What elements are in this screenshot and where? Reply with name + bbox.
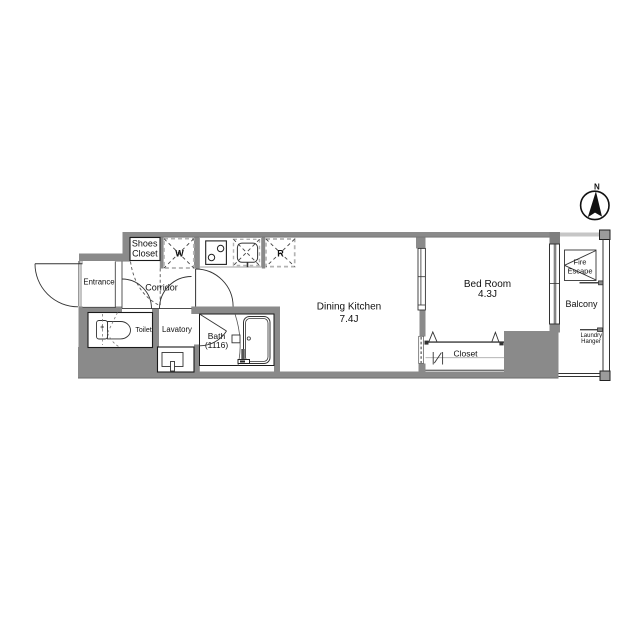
svg-text:Shoes: Shoes — [132, 239, 158, 249]
svg-text:Hanger: Hanger — [581, 339, 601, 345]
svg-text:Toilet: Toilet — [135, 327, 151, 334]
svg-text:W: W — [175, 249, 184, 259]
svg-text:Fire: Fire — [574, 257, 587, 266]
svg-text:Escape: Escape — [567, 266, 592, 275]
svg-text:R: R — [277, 249, 284, 259]
svg-text:N: N — [594, 183, 600, 192]
svg-text:7.4J: 7.4J — [340, 314, 359, 325]
svg-text:Corridor: Corridor — [145, 283, 178, 293]
svg-text:Entrance: Entrance — [83, 277, 114, 286]
svg-text:Closet: Closet — [132, 249, 158, 259]
svg-text:Lavatory: Lavatory — [162, 325, 192, 334]
svg-text:4.3J: 4.3J — [478, 289, 497, 300]
svg-text:Closet: Closet — [453, 349, 478, 359]
svg-text:Balcony: Balcony — [565, 299, 598, 309]
svg-text:Dining Kitchen: Dining Kitchen — [317, 302, 381, 313]
